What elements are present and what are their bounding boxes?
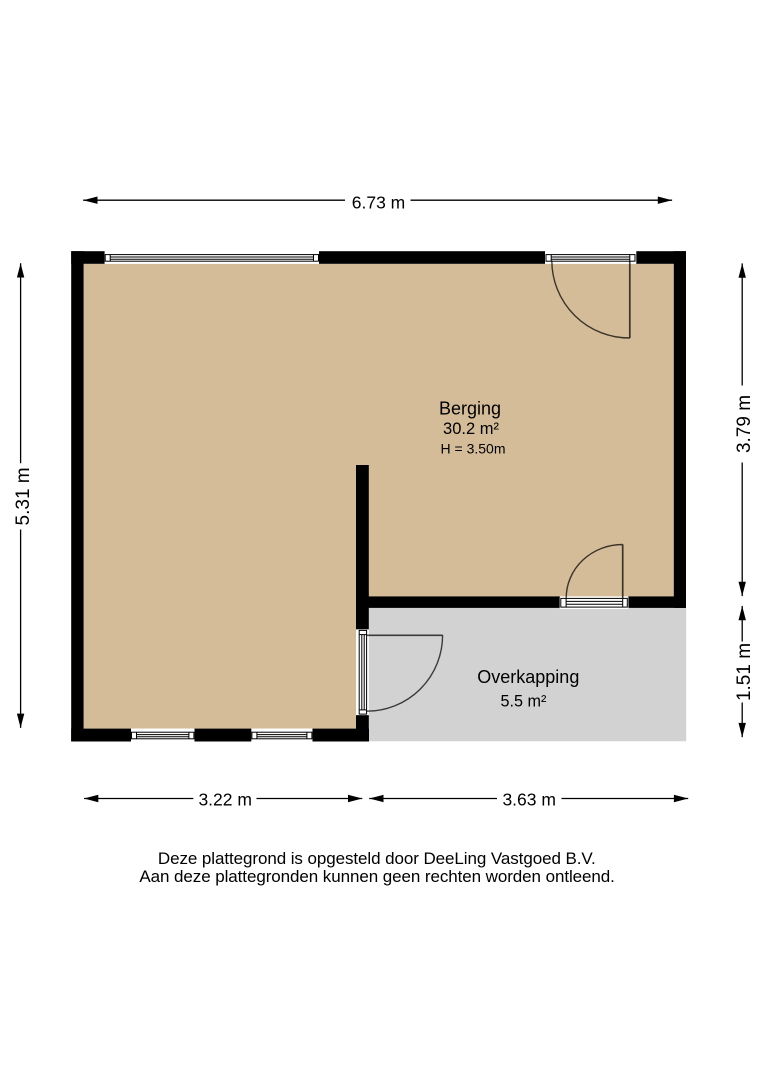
svg-text:1.51 m: 1.51 m: [734, 643, 755, 701]
svg-text:Berging: Berging: [439, 398, 501, 418]
svg-text:3.79 m: 3.79 m: [734, 395, 755, 453]
svg-text:Overkapping: Overkapping: [477, 667, 579, 687]
svg-text:Aan deze plattegronden kunnen: Aan deze plattegronden kunnen geen recht…: [139, 867, 614, 886]
svg-text:3.22 m: 3.22 m: [198, 789, 252, 809]
svg-text:3.63 m: 3.63 m: [502, 789, 556, 809]
svg-text:H = 3.50m: H = 3.50m: [441, 440, 506, 456]
svg-text:30.2 m²: 30.2 m²: [443, 420, 499, 438]
svg-text:Deze plattegrond is opgesteld: Deze plattegrond is opgesteld door DeeLi…: [158, 849, 596, 868]
svg-text:5.5 m²: 5.5 m²: [500, 692, 546, 710]
svg-text:5.31 m: 5.31 m: [13, 467, 34, 525]
svg-text:6.73 m: 6.73 m: [352, 192, 406, 212]
